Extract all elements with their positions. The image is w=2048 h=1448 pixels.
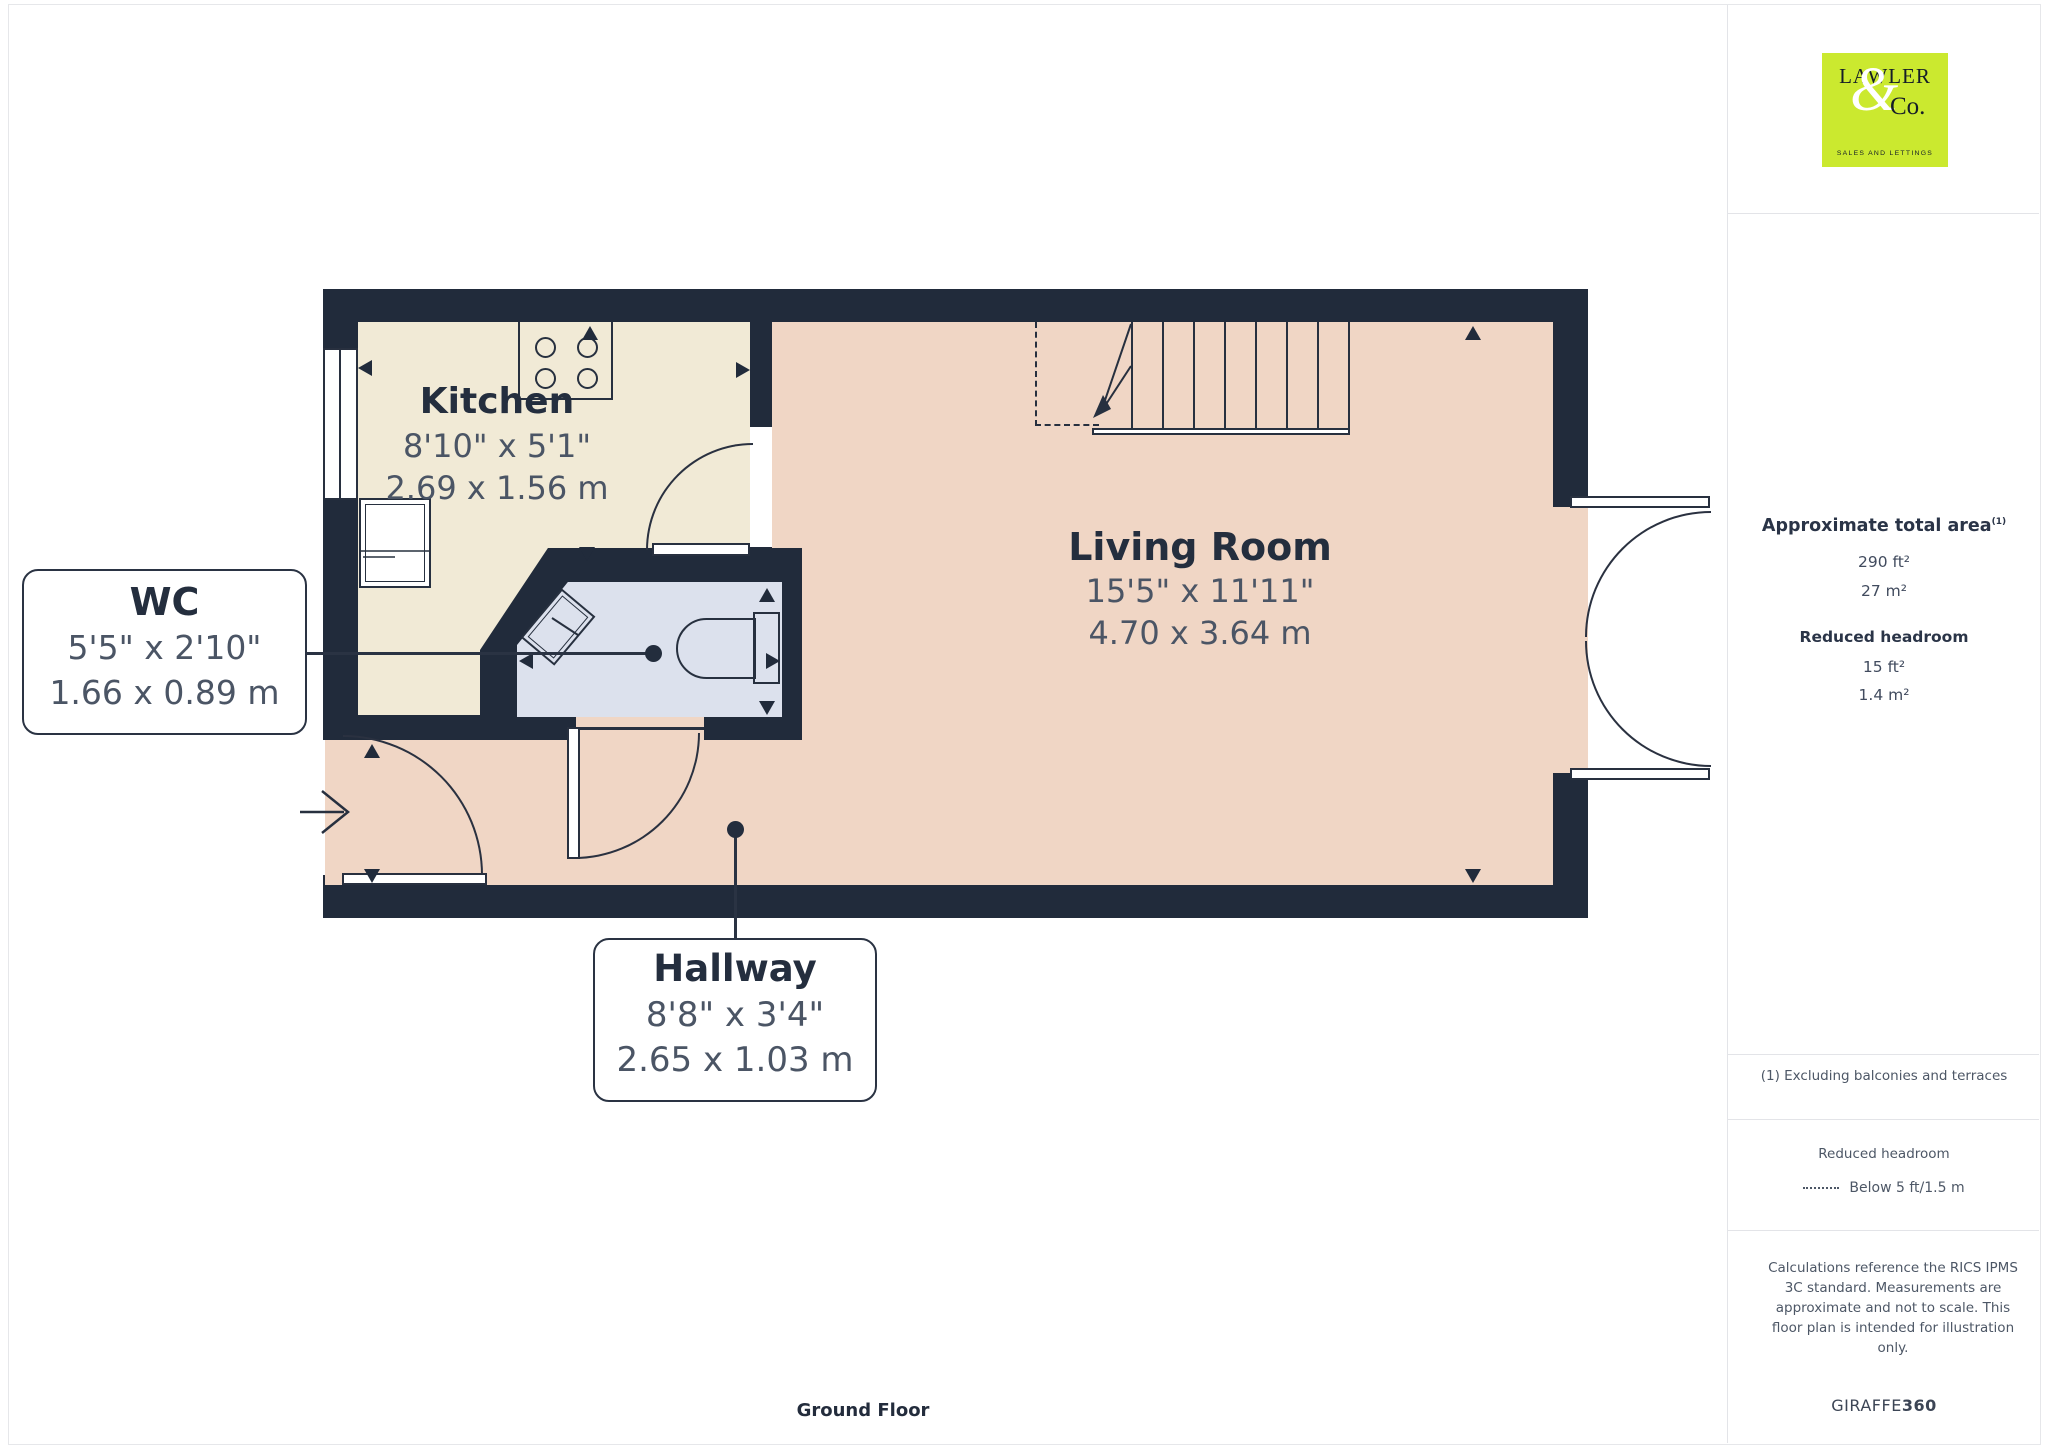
living-room-door-leaf	[567, 727, 580, 859]
dimension-arrow-icon	[759, 701, 775, 715]
room-dimensions-imperial: 8'10" x 5'1"	[317, 425, 677, 467]
hallway-leader-line	[734, 828, 737, 940]
dimension-arrow-icon	[579, 547, 595, 561]
wall-kitchen-living-upper	[750, 322, 772, 427]
kitchen-label: Kitchen 8'10" x 5'1" 2.69 x 1.56 m	[317, 379, 677, 509]
sidebar-section-line	[1728, 213, 2039, 214]
sidebar-section-line	[1728, 1119, 2039, 1120]
legend-title: Reduced headroom	[1728, 1146, 2040, 1162]
room-dimensions-imperial: 5'5" x 2'10"	[24, 625, 305, 671]
wc-leader-dot	[645, 645, 662, 662]
hallway-label-box: Hallway 8'8" x 3'4" 2.65 x 1.03 m	[593, 938, 877, 1102]
brand-bold: 360	[1902, 1396, 1937, 1415]
reduced-headroom-dashed-line-horizontal	[1035, 424, 1099, 426]
wc-label-box: WC 5'5" x 2'10" 1.66 x 0.89 m	[22, 569, 307, 735]
floor-title: Ground Floor	[738, 1400, 988, 1421]
dimension-arrow-icon	[766, 653, 780, 669]
sidebar-section-line	[1728, 1230, 2039, 1231]
dimension-arrow-icon	[364, 744, 380, 758]
dimension-arrow-icon	[1465, 869, 1481, 883]
area-metric-value: 27 m²	[1728, 582, 2040, 600]
footnote-marker: (1)	[1992, 517, 2007, 527]
staircase-treads	[1131, 322, 1350, 428]
wall-bottom	[323, 885, 1588, 918]
legend-item-text: Below 5 ft/1.5 m	[1849, 1180, 1964, 1196]
room-dimensions-metric: 1.66 x 0.89 m	[24, 671, 305, 715]
hallway-leader-dot	[727, 821, 744, 838]
room-dimensions-metric: 2.65 x 1.03 m	[595, 1038, 875, 1082]
wall-right-upper	[1553, 289, 1588, 507]
hall-living-threshold	[576, 727, 704, 730]
room-name: Hallway	[595, 946, 875, 992]
stove-burner-icon	[577, 337, 598, 358]
wall-right-lower	[1553, 773, 1588, 918]
kitchen-counter-inner	[365, 504, 425, 582]
logo-tagline: SALES AND LETTINGS	[1822, 150, 1948, 157]
dimension-arrow-icon	[364, 869, 380, 883]
dimension-arrow-icon	[759, 588, 775, 602]
room-name: Kitchen	[317, 379, 677, 425]
french-door-top-leaf	[1570, 496, 1710, 508]
kitchen-door-leaf	[652, 543, 750, 556]
logo-name-bottom: Co.	[1890, 93, 1925, 121]
toilet-cistern-icon	[753, 612, 780, 684]
dimension-arrow-icon	[736, 362, 750, 378]
dimension-arrow-icon	[519, 653, 533, 669]
dimension-arrow-icon	[358, 360, 372, 376]
stove-burner-icon	[535, 337, 556, 358]
french-door-bottom-arc	[1585, 641, 1711, 767]
area-imperial-value: 290 ft²	[1728, 553, 2040, 571]
dashed-line-icon	[1803, 1187, 1839, 1189]
french-door-top-arc	[1585, 511, 1711, 637]
reduced-headroom-title: Reduced headroom	[1728, 628, 2040, 646]
wc-leader-line	[307, 652, 648, 655]
room-name: WC	[24, 579, 305, 625]
disclaimer-text: Calculations reference the RICS IPMS 3C …	[1762, 1258, 2024, 1358]
sidebar-section-line	[1728, 1054, 2039, 1055]
room-name: Living Room	[1015, 524, 1385, 570]
approximate-area-title: Approximate total area(1)	[1728, 516, 2040, 536]
brand-regular: GIRAFFE	[1831, 1396, 1902, 1415]
reduced-headroom-dashed-line-vertical	[1035, 322, 1037, 426]
dimension-arrow-icon	[582, 326, 598, 340]
french-door-bottom-leaf	[1570, 768, 1710, 780]
sidebar-divider	[1727, 5, 1728, 1443]
area-footnote: (1) Excluding balconies and terraces	[1728, 1068, 2040, 1084]
staircase-landing-edge	[1092, 428, 1350, 435]
room-dimensions-metric: 4.70 x 3.64 m	[1015, 612, 1385, 654]
wall-top	[323, 289, 1588, 322]
headroom-imperial-value: 15 ft²	[1728, 658, 2040, 676]
toilet-bowl-icon	[676, 618, 756, 679]
agency-logo: LAWLER & Co. SALES AND LETTINGS	[1822, 53, 1948, 167]
room-dimensions-metric: 2.69 x 1.56 m	[317, 467, 677, 509]
living-room-label: Living Room 15'5" x 11'11" 4.70 x 3.64 m	[1015, 524, 1385, 654]
room-dimensions-imperial: 8'8" x 3'4"	[595, 992, 875, 1038]
room-dimensions-imperial: 15'5" x 11'11"	[1015, 570, 1385, 612]
legend-row: Below 5 ft/1.5 m	[1728, 1180, 2040, 1196]
living-room-floor-door-extension	[1553, 507, 1588, 773]
approximate-area-title-text: Approximate total area	[1762, 516, 1992, 536]
headroom-metric-value: 1.4 m²	[1728, 686, 2040, 704]
giraffe360-brand: GIRAFFE360	[1728, 1396, 2040, 1415]
dimension-arrow-icon	[1465, 326, 1481, 340]
